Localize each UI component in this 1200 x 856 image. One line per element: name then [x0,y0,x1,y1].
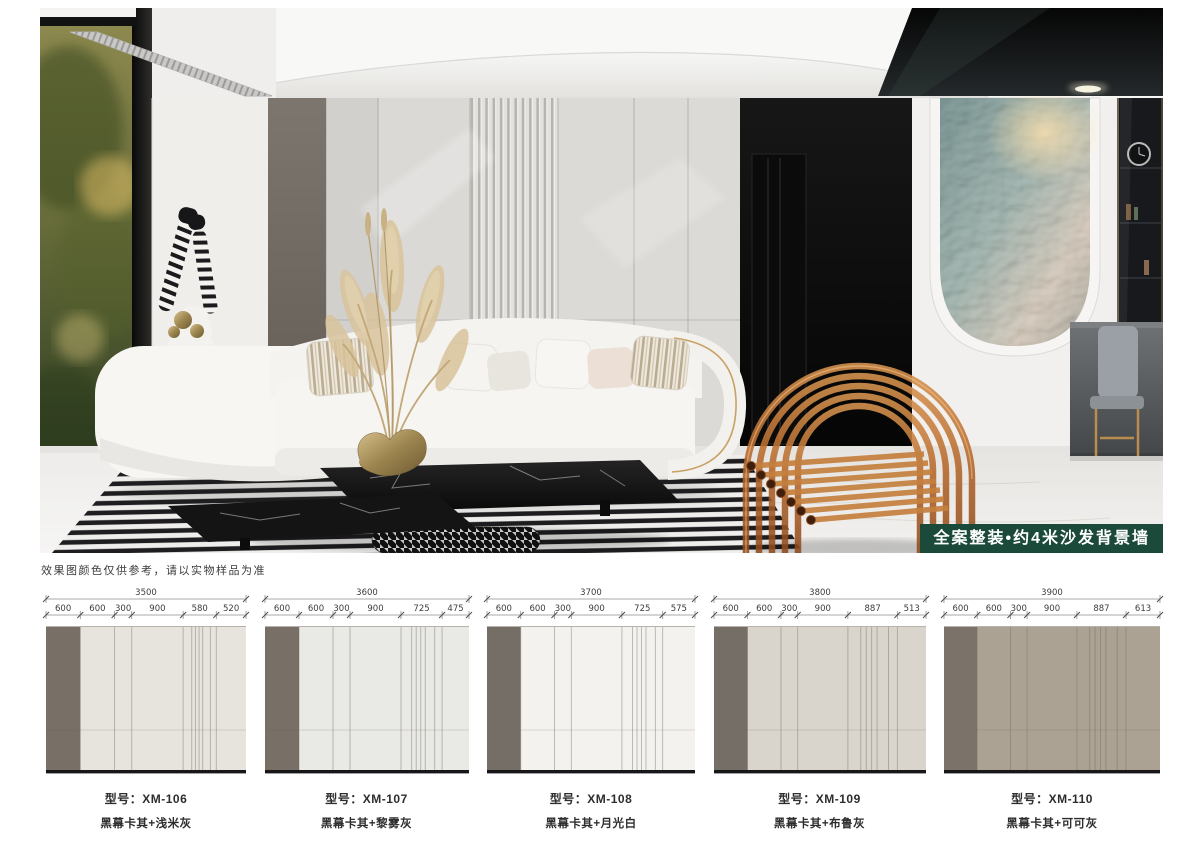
spec-panel: 3900600600300900887613型号：XM-110黑幕卡其+可可灰 [944,586,1160,831]
elevation-drawing [944,624,1160,776]
svg-text:3800: 3800 [809,588,831,598]
svg-text:600: 600 [273,604,289,614]
dimension-diagram: 3800600600300900887513 [714,586,926,622]
model-label: 型号：XM-108 [550,790,633,807]
model-label: 型号：XM-110 [1011,790,1093,807]
spec-panel: 3800600600300900887513型号：XM-109黑幕卡其+布鲁灰 [714,586,926,831]
svg-text:900: 900 [1044,604,1060,614]
downlight [1075,86,1101,93]
render-badge-label: 全案整装•约4米沙发背景墙 [933,530,1150,547]
svg-text:900: 900 [589,604,605,614]
svg-text:900: 900 [149,604,165,614]
svg-text:3600: 3600 [356,588,378,598]
svg-text:575: 575 [671,604,687,614]
spec-panels-row: 3500600600300900580520型号：XM-106黑幕卡其+浅米灰3… [46,586,1160,831]
dimension-diagram: 3900600600300900887613 [944,586,1160,622]
finish-label: 黑幕卡其+黎雾灰 [321,815,412,831]
svg-text:725: 725 [413,604,429,614]
svg-text:600: 600 [307,604,323,614]
svg-text:600: 600 [496,604,512,614]
svg-text:887: 887 [1093,604,1109,614]
svg-text:900: 900 [814,604,830,614]
spec-panel: 3500600600300900580520型号：XM-106黑幕卡其+浅米灰 [46,586,246,831]
svg-text:725: 725 [634,604,650,614]
render-scene [40,8,1163,553]
finish-label: 黑幕卡其+浅米灰 [100,815,191,831]
disclaimer-text: 效果图颜色仅供参考，请以实物样品为准 [41,562,266,578]
svg-text:887: 887 [864,604,880,614]
elevation-drawing [265,624,469,776]
model-label: 型号：XM-107 [325,790,408,807]
dimension-diagram: 3500600600300900580520 [46,586,246,622]
svg-text:520: 520 [223,604,239,614]
elevation-drawing [714,624,926,776]
poster-page: 全案整装•约4米沙发背景墙 效果图颜色仅供参考，请以实物样品为准 3500600… [0,0,1200,856]
svg-text:600: 600 [952,604,968,614]
dimension-diagram: 3700600600300900725575 [487,586,695,622]
svg-text:3500: 3500 [135,588,157,598]
living-room-render: 全案整装•约4米沙发背景墙 [40,8,1163,553]
svg-text:580: 580 [192,604,208,614]
svg-text:513: 513 [903,604,919,614]
svg-text:3700: 3700 [580,588,602,598]
svg-text:613: 613 [1135,604,1151,614]
svg-text:3900: 3900 [1041,588,1063,598]
spec-panel: 3700600600300900725575型号：XM-108黑幕卡其+月光白 [487,586,695,831]
render-badge: 全案整装•约4米沙发背景墙 [920,524,1163,553]
svg-text:600: 600 [89,604,105,614]
svg-text:600: 600 [55,604,71,614]
model-label: 型号：XM-109 [778,790,861,807]
svg-text:600: 600 [722,604,738,614]
finish-label: 黑幕卡其+布鲁灰 [774,815,865,831]
svg-text:600: 600 [986,604,1002,614]
svg-text:600: 600 [756,604,772,614]
elevation-drawing [487,624,695,776]
spec-panel: 3600600600300900725475型号：XM-107黑幕卡其+黎雾灰 [265,586,469,831]
finish-label: 黑幕卡其+可可灰 [1006,815,1097,831]
svg-text:475: 475 [447,604,463,614]
svg-text:600: 600 [529,604,545,614]
model-label: 型号：XM-106 [105,790,188,807]
elevation-drawing [46,624,246,776]
finish-label: 黑幕卡其+月光白 [545,815,636,831]
dimension-diagram: 3600600600300900725475 [265,586,469,622]
black-ceiling [878,8,1163,96]
svg-text:900: 900 [367,604,383,614]
